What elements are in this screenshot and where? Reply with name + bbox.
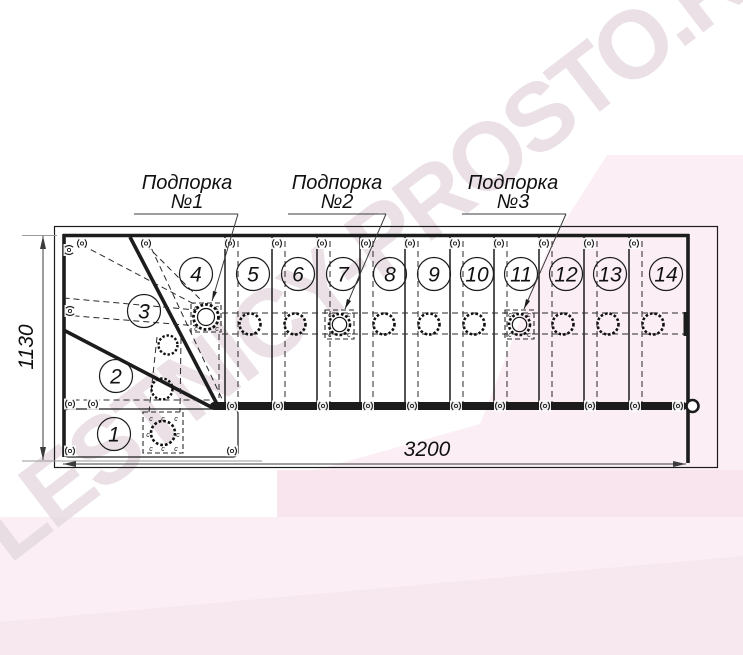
fastener-icon: [672, 401, 684, 412]
svg-text:13: 13: [598, 264, 622, 287]
fastener-icon: [493, 238, 505, 249]
support-post-1: c c c c: [191, 303, 221, 333]
fastener-icon: [271, 238, 283, 249]
svg-text:14: 14: [654, 264, 677, 287]
fastener-icon: [538, 238, 550, 249]
step-circle: 12: [550, 258, 583, 291]
step-circle: 4: [180, 258, 213, 291]
length-value: 3200: [404, 438, 451, 461]
fastener-icon: [76, 238, 88, 249]
step-circle: 6: [282, 258, 315, 291]
fastener-icon: [628, 238, 640, 249]
svg-text:№2: №2: [321, 191, 354, 213]
svg-text:12: 12: [554, 264, 578, 287]
step-circle: 2: [100, 360, 133, 393]
first-step-post: c c c c c c c c: [143, 412, 183, 453]
fastener-icon: [583, 238, 595, 249]
svg-text:2: 2: [109, 366, 122, 389]
step-circle: 9: [418, 258, 451, 291]
svg-text:c: c: [174, 416, 178, 423]
balusters: [152, 314, 664, 400]
support-post-3: c c c c: [505, 310, 534, 339]
step-circle: 7: [327, 258, 360, 291]
fastener-icon: [64, 399, 76, 410]
svg-text:9: 9: [428, 264, 440, 287]
depth-value: 1130: [15, 324, 38, 369]
fastener-icon: [406, 401, 418, 412]
fastener-icon: [317, 401, 329, 412]
svg-text:c: c: [194, 305, 198, 312]
svg-text:c: c: [176, 432, 180, 439]
staircase-plan: c c c c c c c c c c c c c c c: [0, 0, 743, 655]
step-circle: 5: [237, 258, 270, 291]
svg-text:4: 4: [190, 264, 202, 287]
step-circle: 11: [505, 258, 538, 291]
step-circle: 13: [594, 258, 627, 291]
svg-text:c: c: [347, 312, 351, 319]
svg-text:c: c: [146, 432, 150, 439]
svg-text:c: c: [527, 332, 531, 339]
svg-text:c: c: [508, 312, 512, 319]
svg-text:c: c: [149, 416, 153, 423]
baluster-icon: [419, 314, 440, 335]
svg-text:c: c: [508, 332, 512, 339]
fastener-icon: [584, 401, 596, 412]
support-post-2: c c c c: [325, 310, 354, 339]
baluster-icon: [598, 314, 619, 335]
fastener-icon: [539, 401, 551, 412]
svg-text:6: 6: [292, 264, 304, 287]
baluster-icon: [285, 314, 306, 335]
svg-text:№1: №1: [171, 191, 204, 213]
baluster-icon: [643, 314, 664, 335]
step-circle: 1: [98, 418, 131, 451]
svg-text:c: c: [161, 416, 165, 423]
fastener-icon: [629, 401, 641, 412]
svg-text:c: c: [149, 446, 153, 453]
fastener-icon: [362, 401, 374, 412]
svg-text:c: c: [527, 312, 531, 319]
winder-riser-2-3: [64, 330, 214, 408]
fastener-icon: [494, 401, 506, 412]
fastener-icon: [64, 244, 75, 256]
baluster-icon: [240, 314, 261, 335]
fastener-icon: [360, 238, 372, 249]
fastener-icon: [140, 238, 152, 249]
stringer-end-post: [687, 400, 699, 412]
fastener-icon: [404, 238, 416, 249]
baluster-icon: [374, 314, 395, 335]
fastener-icon: [272, 401, 284, 412]
baluster-icon: [159, 336, 178, 355]
svg-text:c: c: [328, 312, 332, 319]
svg-text:5: 5: [247, 264, 259, 287]
fastener-icon: [64, 446, 76, 457]
fastener-icon: [226, 446, 238, 457]
baluster-icon: [553, 314, 574, 335]
step-numbers: 1 2 3 4 5 6 7: [98, 258, 683, 451]
fastener-icon: [450, 401, 462, 412]
fastener-icon: [226, 401, 238, 412]
fastener-icon: [449, 238, 461, 249]
fastener-icon: [87, 399, 99, 410]
svg-text:1: 1: [108, 424, 120, 447]
svg-text:c: c: [161, 446, 165, 453]
svg-text:c: c: [328, 332, 332, 339]
svg-text:c: c: [215, 326, 219, 333]
svg-text:c: c: [215, 305, 219, 312]
svg-text:c: c: [347, 332, 351, 339]
svg-text:7: 7: [337, 264, 350, 287]
staircase-drawing-page: LESTNICY-PROSTO.RU: [0, 0, 743, 655]
fastener-icon: [316, 238, 328, 249]
svg-text:8: 8: [384, 264, 396, 287]
fastener-icon: [65, 305, 76, 317]
svg-text:11: 11: [510, 264, 532, 287]
step-circle: 3: [128, 295, 161, 328]
svg-text:№3: №3: [497, 191, 530, 213]
step-circle: 8: [374, 258, 407, 291]
svg-text:c: c: [174, 446, 178, 453]
baluster-icon: [464, 314, 485, 335]
svg-text:c: c: [194, 326, 198, 333]
svg-text:3: 3: [138, 301, 150, 324]
step-circle: 14: [650, 258, 683, 291]
step-circle: 10: [461, 258, 494, 291]
handrail: [152, 312, 699, 412]
svg-text:10: 10: [465, 264, 489, 287]
